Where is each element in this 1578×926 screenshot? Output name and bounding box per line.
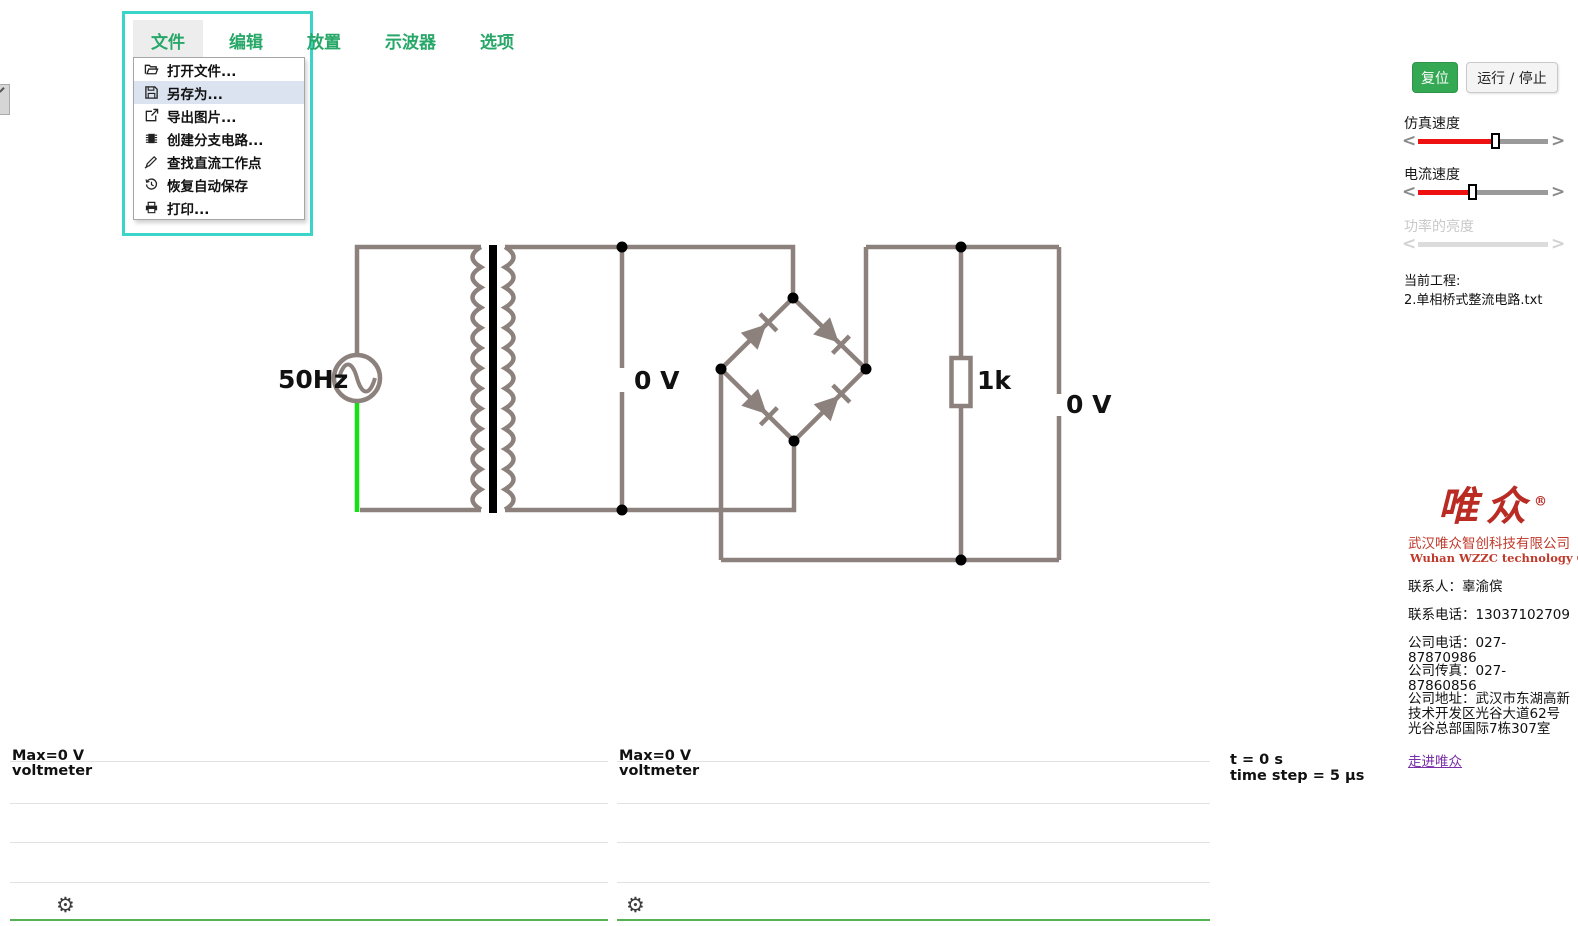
scope-gridline xyxy=(617,761,1210,762)
scope-max-value: Max=0 V xyxy=(619,749,699,764)
history-icon xyxy=(143,177,159,193)
wire-secondary-top[interactable] xyxy=(505,247,793,300)
time-value: t = 0 s xyxy=(1230,753,1364,769)
slider-increase-icon: > xyxy=(1551,235,1564,253)
voltmeter1-value: 0 V xyxy=(634,366,680,395)
company-phone: 公司电话：027-87870986 xyxy=(1408,636,1570,666)
menu-bar: 文件 编辑 放置 示波器 选项 xyxy=(133,20,532,61)
printer-icon xyxy=(143,200,159,216)
slider-track xyxy=(1418,242,1548,247)
contact-phone: 联系电话：13037102709 xyxy=(1408,608,1570,623)
scope-trace xyxy=(617,919,1210,921)
source-frequency-label: 50Hz xyxy=(278,365,348,394)
slider-track[interactable] xyxy=(1418,190,1548,195)
resistor-value: 1k xyxy=(977,366,1012,395)
scope-max-value: Max=0 V xyxy=(12,749,92,764)
scope-gridline xyxy=(10,842,608,843)
scope-panel-2[interactable]: Max=0 V voltmeter ⚙ xyxy=(617,745,1210,923)
menu-item-label: 打开文件... xyxy=(167,60,236,80)
pencil-icon xyxy=(143,154,159,170)
menu-item-recover-autosave[interactable]: 恢复自动保存 xyxy=(134,173,304,196)
scope-gridline xyxy=(617,803,1210,804)
junction-dot xyxy=(789,436,800,447)
transformer-core xyxy=(489,245,497,513)
menu-item-find-dc-operating-point[interactable]: 查找直流工作点 xyxy=(134,150,304,173)
folder-open-icon xyxy=(143,62,159,78)
slider-thumb[interactable] xyxy=(1491,133,1500,149)
power-brightness-slider: < > xyxy=(1402,235,1564,253)
junction-dot xyxy=(956,555,967,566)
company-name-en: Wuhan WZZC technology Con.,Ltd xyxy=(1410,551,1578,565)
scope-trace xyxy=(10,919,608,921)
wire-primary-top[interactable] xyxy=(357,247,481,355)
save-icon xyxy=(143,85,159,101)
menu-item-label: 恢复自动保存 xyxy=(167,175,248,195)
menu-item-open-file[interactable]: 打开文件... xyxy=(134,58,304,81)
scope-gridline xyxy=(617,882,1210,883)
scope-panel-1[interactable]: Max=0 V voltmeter ⚙ xyxy=(10,745,608,923)
wire-secondary-bottom[interactable] xyxy=(505,439,794,510)
file-dropdown-menu: 打开文件... 另存为... 导出图片... 创建分支电路... 查找直流工作点 xyxy=(133,57,305,220)
visit-company-link[interactable]: 走进唯众 xyxy=(1408,750,1462,770)
chip-icon xyxy=(143,131,159,147)
menu-file[interactable]: 文件 xyxy=(133,20,203,61)
junction-dot xyxy=(716,364,727,375)
menu-item-label: 另存为... xyxy=(167,83,223,103)
transformer-primary-coil[interactable] xyxy=(473,247,482,510)
junction-dot xyxy=(788,293,799,304)
company-fax: 公司传真：027-87860856 xyxy=(1408,664,1570,694)
contact-person: 联系人：辜渝傧 xyxy=(1408,580,1570,595)
current-project-filename: 2.单相桥式整流电路.txt xyxy=(1404,289,1542,308)
company-logo: 唯众® xyxy=(1438,474,1547,532)
scope-gridline xyxy=(10,803,608,804)
menu-options[interactable]: 选项 xyxy=(462,20,532,61)
junction-dot xyxy=(617,505,628,516)
transformer-secondary-coil[interactable] xyxy=(505,247,514,510)
slider-increase-icon[interactable]: > xyxy=(1551,183,1564,201)
menu-item-label: 创建分支电路... xyxy=(167,129,263,149)
scope-gridline xyxy=(10,882,608,883)
scope-settings-gear-icon[interactable]: ⚙ xyxy=(56,895,75,916)
resistor[interactable] xyxy=(952,358,971,406)
scope-gridline xyxy=(10,761,608,762)
menu-edit[interactable]: 编辑 xyxy=(211,20,281,61)
slider-thumb[interactable] xyxy=(1468,184,1477,200)
current-project-heading: 当前工程: xyxy=(1404,270,1460,289)
current-speed-label: 电流速度 xyxy=(1404,164,1460,184)
bridge-rectifier[interactable] xyxy=(721,298,866,441)
junction-dot xyxy=(861,364,872,375)
scope-source-name: voltmeter xyxy=(12,764,92,779)
scope-gridline xyxy=(617,842,1210,843)
menu-item-create-subcircuit[interactable]: 创建分支电路... xyxy=(134,127,304,150)
company-name-cn: 武汉唯众智创科技有限公司 xyxy=(1408,532,1570,552)
simulation-speed-label: 仿真速度 xyxy=(1404,113,1460,133)
slider-track[interactable] xyxy=(1418,139,1548,144)
menu-item-export-image[interactable]: 导出图片... xyxy=(134,104,304,127)
junction-dot xyxy=(956,242,967,253)
registered-mark: ® xyxy=(1534,495,1547,510)
voltmeter2-value: 0 V xyxy=(1066,390,1112,419)
company-address: 公司地址：武汉市东湖高新技术开发区光谷大道62号光谷总部国际7栋307室 xyxy=(1408,692,1570,737)
current-speed-slider[interactable]: < > xyxy=(1402,183,1564,201)
menu-item-save-as[interactable]: 另存为... xyxy=(134,81,304,104)
run-stop-button[interactable]: 运行 / 停止 xyxy=(1466,62,1558,93)
simulation-speed-slider[interactable]: < > xyxy=(1402,132,1564,150)
menu-place[interactable]: 放置 xyxy=(289,20,359,61)
scope-source-name: voltmeter xyxy=(619,764,699,779)
menu-item-print[interactable]: 打印... xyxy=(134,196,304,219)
slider-decrease-icon[interactable]: < xyxy=(1402,183,1415,201)
menu-item-label: 导出图片... xyxy=(167,106,236,126)
scope-label: Max=0 V voltmeter xyxy=(619,749,699,779)
slider-decrease-icon[interactable]: < xyxy=(1402,132,1415,150)
export-image-icon xyxy=(143,108,159,124)
circuit-simulator-app: { "menu": { "items": [ {"label": "文件", "… xyxy=(0,0,1578,926)
menu-oscilloscope[interactable]: 示波器 xyxy=(367,20,454,61)
time-step-value: time step = 5 µs xyxy=(1230,769,1364,785)
scope-settings-gear-icon[interactable]: ⚙ xyxy=(626,895,645,916)
reset-button[interactable]: 复位 xyxy=(1412,62,1458,93)
menu-item-label: 打印... xyxy=(167,198,209,218)
slider-decrease-icon: < xyxy=(1402,235,1415,253)
junction-dot xyxy=(617,242,628,253)
slider-increase-icon[interactable]: > xyxy=(1551,132,1564,150)
simulation-time-status: t = 0 s time step = 5 µs xyxy=(1230,753,1364,784)
menu-item-label: 查找直流工作点 xyxy=(167,152,262,172)
power-brightness-label: 功率的亮度 xyxy=(1404,216,1474,236)
scope-label: Max=0 V voltmeter xyxy=(12,749,92,779)
